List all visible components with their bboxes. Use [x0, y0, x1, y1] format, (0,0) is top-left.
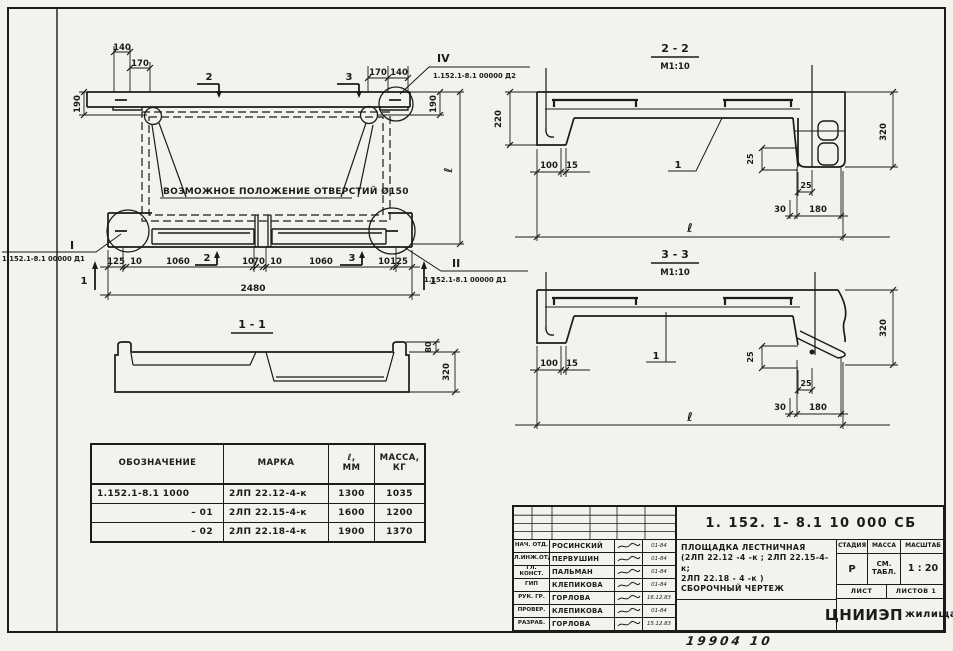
dim-label: 25: [746, 153, 755, 165]
sig-name: ПЕРВУШИН: [550, 553, 615, 565]
bar-label: 1: [653, 351, 660, 362]
section-title: 3 - 3: [661, 248, 689, 261]
dim-label: 25: [746, 351, 755, 363]
table-row: 1.152.1-8.1 1000 2ЛП 22.12-4-к 1300 1035: [92, 485, 424, 504]
sheet-row: ЛИСТ ЛИСТОВ 1: [837, 585, 945, 599]
cell-designation: 1.152.1-8.1 1000: [92, 485, 224, 503]
dim-label: 1060: [309, 257, 333, 267]
section-scale: М1:10: [660, 62, 690, 72]
dim-label: 25: [800, 379, 812, 388]
sig-name: КЛЕПИКОВА: [550, 579, 615, 591]
drawing-title-line2: (2ЛП 22.12 -4 -к ; 2ЛП 22.15-4-к;: [681, 553, 832, 574]
sig-date: 01-84: [643, 605, 675, 617]
dim-label: 140: [390, 68, 408, 78]
col-header-mass-line2: КГ: [393, 464, 406, 474]
dim-label: 10: [130, 257, 142, 267]
scale-label: МАСШТАБ: [901, 540, 945, 553]
signature-row: ГИП КЛЕПИКОВА 01-84: [514, 579, 675, 592]
plan-view: [87, 87, 415, 254]
signature: [615, 592, 643, 604]
sig-date: 01-84: [643, 553, 675, 565]
stage-mass-scale-values: Р СМ. ТАБЛ. 1 : 20: [837, 554, 945, 585]
title-block: НАЧ. ОТД. РОСИНСКИЙ 01-84 ГЛ.ИНЖ.ОТД ПЕР…: [512, 505, 945, 632]
dim-label: 2480: [240, 284, 265, 294]
sheet-label: ЛИСТ: [837, 585, 887, 598]
sig-name: ГОРЛОВА: [550, 618, 615, 630]
sig-name: КЛЕПИКОВА: [550, 605, 615, 617]
section-mark-label: 3: [349, 253, 356, 264]
signature-row: РАЗРАБ. ГОРЛОВА 15.12.83: [514, 618, 675, 630]
stage-label: СТАДИЯ: [837, 540, 868, 553]
dim-label: 25: [800, 181, 812, 190]
dim-label: 15: [566, 161, 578, 171]
col-header-length: ℓ, ММ: [329, 445, 375, 483]
cell-mass: 1200: [375, 504, 424, 522]
bar-label: 1: [675, 160, 682, 171]
col-header-mass: МАССА, КГ: [375, 445, 424, 483]
document-number: 1. 152. 1- 8.1 10 000 СБ: [677, 507, 945, 540]
signature-rows: НАЧ. ОТД. РОСИНСКИЙ 01-84 ГЛ.ИНЖ.ОТД ПЕР…: [514, 540, 675, 630]
sig-date: 15.12.83: [643, 618, 675, 630]
dim-label: 170: [369, 68, 387, 78]
col-header-length-line2: ММ: [343, 464, 361, 474]
dim-label: 180: [809, 205, 827, 215]
dim-label: 1060: [166, 257, 190, 267]
signature: [615, 566, 643, 578]
callout-ref: 1.152.1-8.1 00000 Д1: [2, 255, 85, 263]
section-mark-label: 2: [204, 253, 211, 264]
dim-label: 70: [253, 257, 265, 267]
signature: [615, 540, 643, 552]
signature: [615, 553, 643, 565]
col-header-mark: МАРКА: [224, 445, 329, 483]
dim-label: 170: [131, 59, 149, 69]
dim-label: 80: [424, 341, 433, 353]
scale-value: 1 : 20: [901, 554, 945, 584]
dim-label: 30: [774, 403, 786, 413]
cell-length: 1600: [329, 504, 375, 522]
dim-label: 10: [378, 257, 390, 267]
dim-label: 220: [494, 110, 504, 128]
stage-mass-scale-header: СТАДИЯ МАССА МАСШТАБ: [837, 540, 945, 554]
signature-row: ГЛ.ИНЖ.ОТД ПЕРВУШИН 01-84: [514, 553, 675, 566]
dim-label: 125: [107, 257, 125, 267]
parts-table-header: ОБОЗНАЧЕНИЕ МАРКА ℓ, ММ МАССА, КГ: [92, 445, 424, 485]
drawing-title-line1: ПЛОЩАДКА ЛЕСТНИЧНАЯ: [681, 543, 832, 553]
section-title: 1 - 1: [238, 318, 266, 331]
mass-label: МАССА: [868, 540, 901, 553]
plan-section-marks: [195, 84, 365, 265]
dim-label: 190: [429, 95, 439, 113]
cell-length: 1300: [329, 485, 375, 503]
dim-label: 320: [879, 319, 889, 337]
sig-role: РУК. ГР.: [514, 592, 550, 604]
drawing-title: ПЛОЩАДКА ЛЕСТНИЧНАЯ (2ЛП 22.12 -4 -к ; 2…: [677, 540, 837, 599]
cell-designation: – 02: [92, 523, 224, 541]
section-mark-label: 3: [346, 72, 353, 83]
sig-role: ГИП: [514, 579, 550, 591]
sig-date: 16.12.83: [643, 592, 675, 604]
sig-role: ГЛ.ИНЖ.ОТД: [514, 553, 550, 565]
sig-role: ПРОВЕР.: [514, 605, 550, 617]
dim-label: ℓ: [686, 221, 693, 235]
title-block-empty-cell: [677, 599, 837, 630]
sig-role: ГЛ. КОНСТ.: [514, 566, 550, 578]
dim-label: ℓ: [442, 167, 455, 173]
callout-label: IV: [437, 52, 450, 65]
sig-name: РОСИНСКИЙ: [550, 540, 615, 552]
cell-designation: – 01: [92, 504, 224, 522]
cell-mass: 1370: [375, 523, 424, 541]
section-scale: М1:10: [660, 268, 690, 278]
signature: [615, 579, 643, 591]
dim-label: 320: [879, 123, 889, 141]
dim-label: 140: [113, 43, 131, 53]
sig-name: ПАЛЬМАН: [550, 566, 615, 578]
plan-note: ВОЗМОЖНОЕ ПОЛОЖЕНИЕ ОТВЕРСТИЙ Ø150: [163, 185, 409, 197]
cell-mark: 2ЛП 22.15-4-к: [224, 504, 329, 522]
dim-label: 180: [809, 403, 827, 413]
dim-label: 100: [540, 359, 558, 369]
drawing-title-line3: 2ЛП 22.18 - 4 -к ): [681, 574, 832, 584]
cell-mark: 2ЛП 22.12-4-к: [224, 485, 329, 503]
signature-row: ПРОВЕР. КЛЕПИКОВА 01-84: [514, 605, 675, 618]
signature-row: РУК. ГР. ГОРЛОВА 16.12.83: [514, 592, 675, 605]
col-header-designation: ОБОЗНАЧЕНИЕ: [92, 445, 224, 483]
dim-label: ℓ: [686, 410, 693, 424]
section-1-1: [115, 333, 460, 395]
table-row: – 02 2ЛП 22.18-4-к 1900 1370: [92, 523, 424, 541]
organization-name-main: ЦНИИЭП: [825, 606, 903, 624]
sig-name: ГОРЛОВА: [550, 592, 615, 604]
mass-value: СМ. ТАБЛ.: [868, 554, 901, 584]
signature-row: НАЧ. ОТД. РОСИНСКИЙ 01-84: [514, 540, 675, 553]
signature: [615, 605, 643, 617]
organization-name: ЦНИИЭП жилища: [837, 599, 945, 630]
drawing-sheet: 140 170 170 140 190 190 ℓ 125 10 1060 10…: [0, 0, 953, 651]
revision-grid: [514, 507, 675, 540]
organization-name-sub: жилища: [905, 609, 953, 620]
callout-ref: 1.152.1-8.1 00000 Д2: [433, 72, 516, 80]
cell-mark: 2ЛП 22.18-4-к: [224, 523, 329, 541]
dim-label: 125: [390, 257, 408, 267]
sig-date: 01-84: [643, 579, 675, 591]
dim-label: 30: [774, 205, 786, 215]
sig-role: НАЧ. ОТД.: [514, 540, 550, 552]
dim-label: 15: [566, 359, 578, 369]
callout-label: II: [452, 257, 460, 270]
callout-ref: 1.152.1-8.1 00000 Д1: [424, 276, 507, 284]
mass-value-line2: ТАБЛ.: [872, 569, 896, 577]
dim-label: 320: [442, 363, 452, 381]
section-title: 2 - 2: [661, 42, 689, 55]
sig-role: РАЗРАБ.: [514, 618, 550, 630]
sig-date: 01-84: [643, 566, 675, 578]
callout-label: I: [70, 239, 74, 252]
section-3-3: [515, 263, 898, 429]
dim-label: 100: [540, 161, 558, 171]
section-mark-label: 1: [81, 276, 88, 287]
section-2-2: [505, 57, 898, 241]
section-mark-label: 2: [206, 72, 213, 83]
title-block-left: НАЧ. ОТД. РОСИНСКИЙ 01-84 ГЛ.ИНЖ.ОТД ПЕР…: [514, 507, 677, 630]
stage-value: Р: [837, 554, 868, 584]
cell-mass: 1035: [375, 485, 424, 503]
sig-date: 01-84: [643, 540, 675, 552]
parts-table: ОБОЗНАЧЕНИЕ МАРКА ℓ, ММ МАССА, КГ 1.152.…: [90, 443, 426, 543]
signature-row: ГЛ. КОНСТ. ПАЛЬМАН 01-84: [514, 566, 675, 579]
drawing-title-line4: СБОРОЧНЫЙ ЧЕРТЕЖ: [681, 584, 832, 594]
table-row: – 01 2ЛП 22.15-4-к 1600 1200: [92, 504, 424, 523]
handwritten-stamp-number: 19904 10: [685, 634, 774, 648]
signature: [615, 618, 643, 630]
dim-label: 10: [270, 257, 282, 267]
title-block-right: СТАДИЯ МАССА МАСШТАБ Р СМ. ТАБЛ. 1 : 20 …: [837, 540, 945, 630]
dim-label: 190: [73, 95, 83, 113]
cell-length: 1900: [329, 523, 375, 541]
sheets-label: ЛИСТОВ 1: [887, 585, 945, 598]
